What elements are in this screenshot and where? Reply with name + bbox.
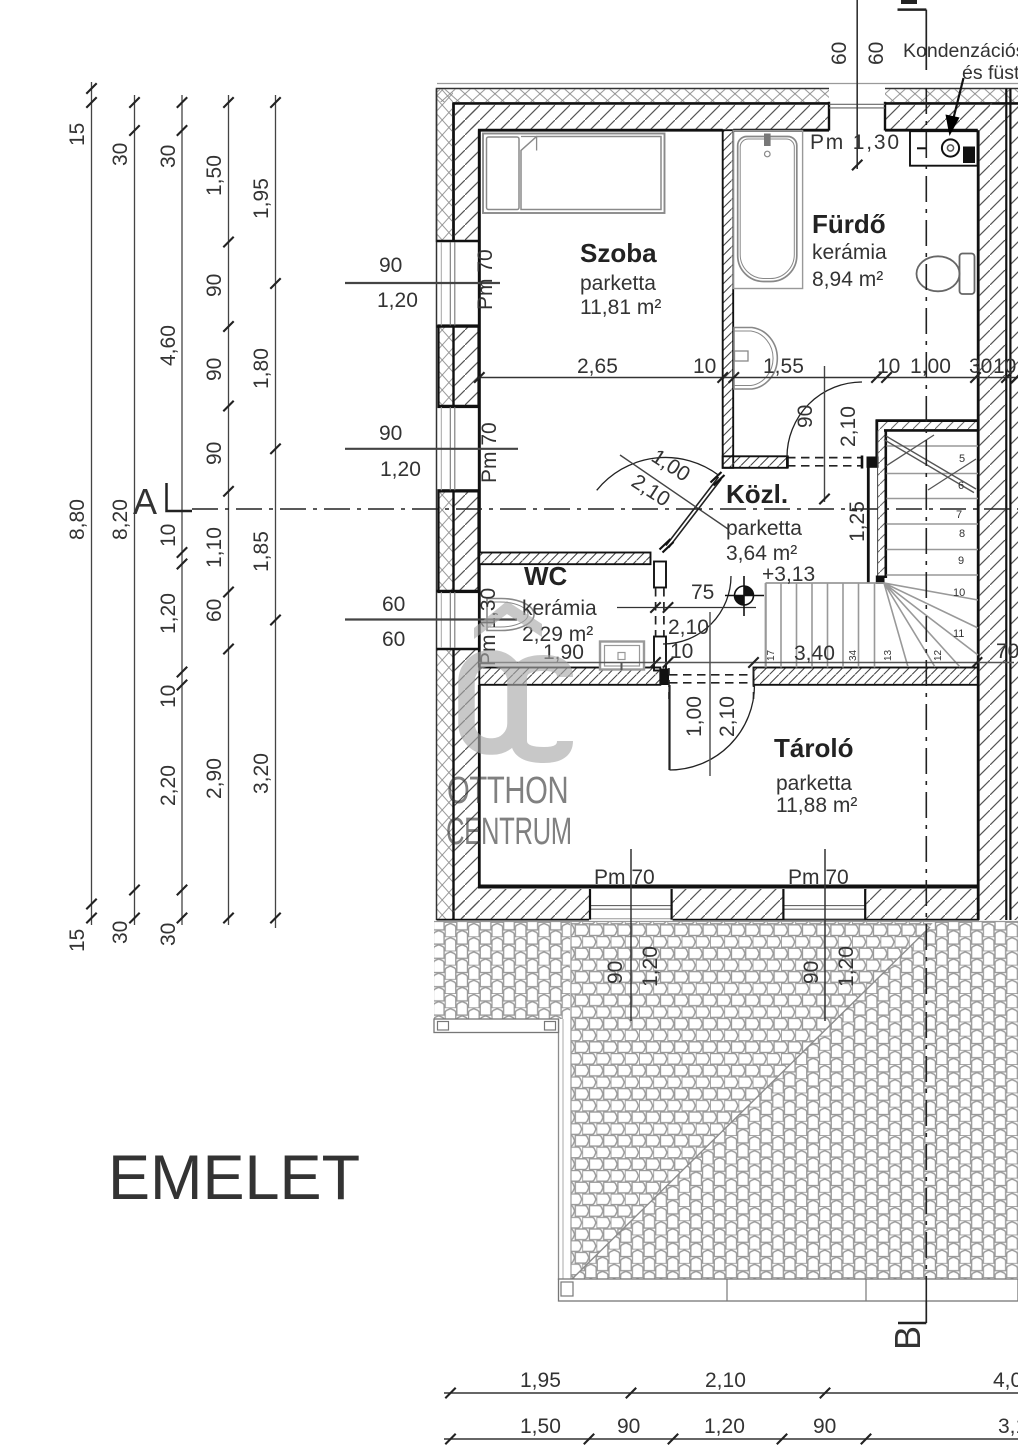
svg-text:1,00: 1,00: [683, 696, 706, 737]
svg-text:12: 12: [933, 649, 944, 661]
svg-text:1,20: 1,20: [639, 946, 662, 987]
svg-text:3,64 m²: 3,64 m²: [726, 542, 797, 565]
svg-text:1,00: 1,00: [910, 355, 951, 378]
svg-text:8,80: 8,80: [66, 499, 89, 540]
svg-text:90: 90: [203, 442, 226, 465]
svg-text:6: 6: [958, 480, 964, 492]
svg-text:1,10: 1,10: [203, 527, 226, 568]
svg-text:9: 9: [958, 555, 964, 567]
svg-text:2,90: 2,90: [203, 758, 226, 799]
svg-text:90: 90: [794, 405, 817, 428]
svg-text:WC: WC: [524, 561, 568, 591]
svg-text:10: 10: [953, 587, 965, 599]
svg-text:1,95: 1,95: [250, 178, 273, 219]
svg-text:11: 11: [953, 628, 964, 640]
svg-text:30: 30: [109, 921, 132, 944]
svg-text:60: 60: [865, 42, 888, 65]
svg-text:10: 10: [693, 355, 716, 378]
svg-text:Tároló: Tároló: [774, 733, 853, 763]
svg-text:4,05: 4,05: [993, 1369, 1018, 1392]
svg-text:3,40: 3,40: [794, 642, 835, 665]
svg-text:1,20: 1,20: [704, 1415, 745, 1438]
svg-text:7: 7: [956, 509, 962, 521]
svg-text:kerámia: kerámia: [522, 597, 597, 620]
svg-text:8,94 m²: 8,94 m²: [812, 268, 883, 291]
svg-text:90: 90: [617, 1415, 640, 1438]
svg-text:1,50: 1,50: [520, 1415, 561, 1438]
svg-text:15: 15: [66, 123, 89, 146]
svg-text:5: 5: [959, 453, 965, 465]
svg-text:90: 90: [813, 1415, 836, 1438]
svg-text:90: 90: [800, 961, 823, 984]
svg-text:2,20: 2,20: [157, 765, 180, 806]
svg-text:parketta: parketta: [580, 272, 656, 295]
svg-text:1,85: 1,85: [250, 531, 273, 572]
svg-text:90: 90: [379, 422, 402, 445]
svg-text:10: 10: [670, 640, 693, 663]
svg-text:A: A: [133, 481, 157, 522]
svg-text:Pm 70: Pm 70: [594, 866, 655, 889]
svg-text:70: 70: [996, 640, 1018, 663]
svg-text:1,55: 1,55: [763, 355, 804, 378]
svg-text:60: 60: [382, 593, 405, 616]
svg-text:3,15: 3,15: [998, 1415, 1018, 1438]
svg-text:11,81 m²: 11,81 m²: [580, 296, 661, 319]
svg-text:11,88 m²: 11,88 m²: [776, 794, 857, 817]
svg-text:10: 10: [157, 685, 180, 708]
svg-text:90: 90: [203, 358, 226, 381]
svg-text:2,10: 2,10: [837, 406, 860, 447]
svg-text:2,65: 2,65: [577, 355, 618, 378]
svg-text:17: 17: [766, 649, 777, 661]
svg-text:Pm 70: Pm 70: [474, 249, 497, 310]
svg-text:4,60: 4,60: [157, 325, 180, 366]
svg-text:60: 60: [203, 599, 226, 622]
svg-text:2,10: 2,10: [716, 696, 739, 737]
svg-text:60: 60: [828, 42, 851, 65]
svg-text:Pm 1,30: Pm 1,30: [810, 131, 901, 154]
svg-text:Fürdő: Fürdő: [812, 209, 886, 239]
svg-text:90: 90: [379, 254, 402, 277]
svg-text:13: 13: [883, 649, 894, 661]
svg-text:1,20: 1,20: [380, 458, 421, 481]
svg-text:+3,13: +3,13: [762, 563, 815, 586]
svg-text:3,20: 3,20: [250, 753, 273, 794]
svg-text:Pm 70: Pm 70: [478, 422, 501, 483]
svg-text:10: 10: [993, 355, 1016, 378]
svg-text:Kondenzációs: Kondenzációs: [903, 40, 1018, 62]
svg-text:30: 30: [157, 923, 180, 946]
svg-text:2,10: 2,10: [705, 1369, 746, 1392]
svg-text:és füstgáz: és füstgáz: [962, 62, 1018, 84]
svg-text:B: B: [887, 1326, 928, 1350]
svg-text:EMELET: EMELET: [108, 1143, 360, 1213]
svg-text:2,10: 2,10: [668, 616, 709, 639]
svg-text:1,20: 1,20: [377, 289, 418, 312]
svg-text:10: 10: [877, 355, 900, 378]
svg-text:1,50: 1,50: [203, 155, 226, 196]
svg-text:15: 15: [66, 929, 89, 952]
svg-text:1,25: 1,25: [846, 501, 869, 542]
svg-text:kerámia: kerámia: [812, 241, 887, 264]
svg-text:OTTHON: OTTHON: [447, 769, 568, 812]
svg-text:parketta: parketta: [776, 772, 852, 795]
svg-text:30: 30: [969, 355, 992, 378]
svg-text:34: 34: [848, 649, 859, 661]
svg-text:parketta: parketta: [726, 517, 802, 540]
svg-text:CENTRUM: CENTRUM: [446, 810, 572, 852]
svg-text:30: 30: [157, 145, 180, 168]
svg-text:10: 10: [157, 524, 180, 547]
svg-text:8,20: 8,20: [109, 499, 132, 540]
svg-text:1,20: 1,20: [835, 946, 858, 987]
svg-text:1,95: 1,95: [520, 1369, 561, 1392]
svg-text:60: 60: [382, 628, 405, 651]
svg-text:Szoba: Szoba: [580, 238, 657, 268]
svg-text:Közl.: Közl.: [726, 479, 788, 509]
svg-text:1,80: 1,80: [250, 348, 273, 389]
svg-text:1,20: 1,20: [157, 593, 180, 634]
svg-text:30: 30: [109, 143, 132, 166]
svg-text:Pm 70: Pm 70: [788, 866, 849, 889]
svg-text:90: 90: [203, 274, 226, 297]
svg-text:75: 75: [691, 581, 714, 604]
svg-text:8: 8: [959, 528, 965, 540]
svg-text:90: 90: [604, 961, 627, 984]
